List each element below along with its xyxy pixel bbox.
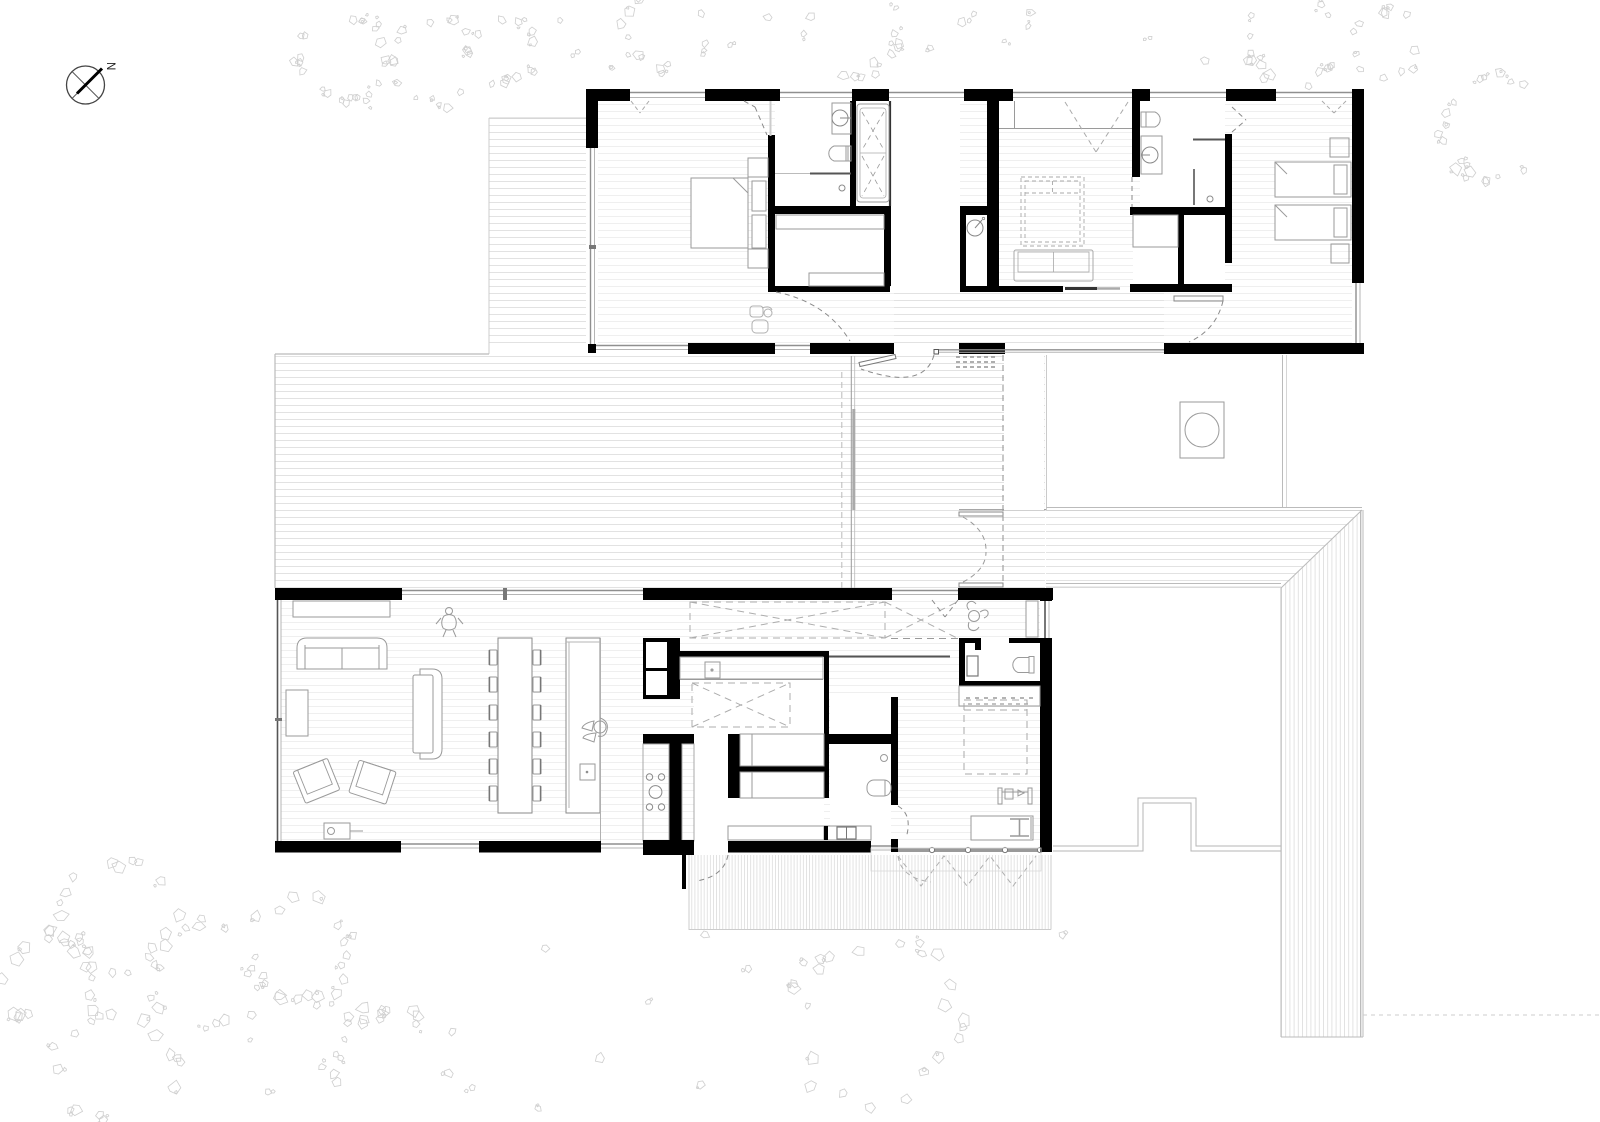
svg-text:N: N — [104, 62, 116, 70]
